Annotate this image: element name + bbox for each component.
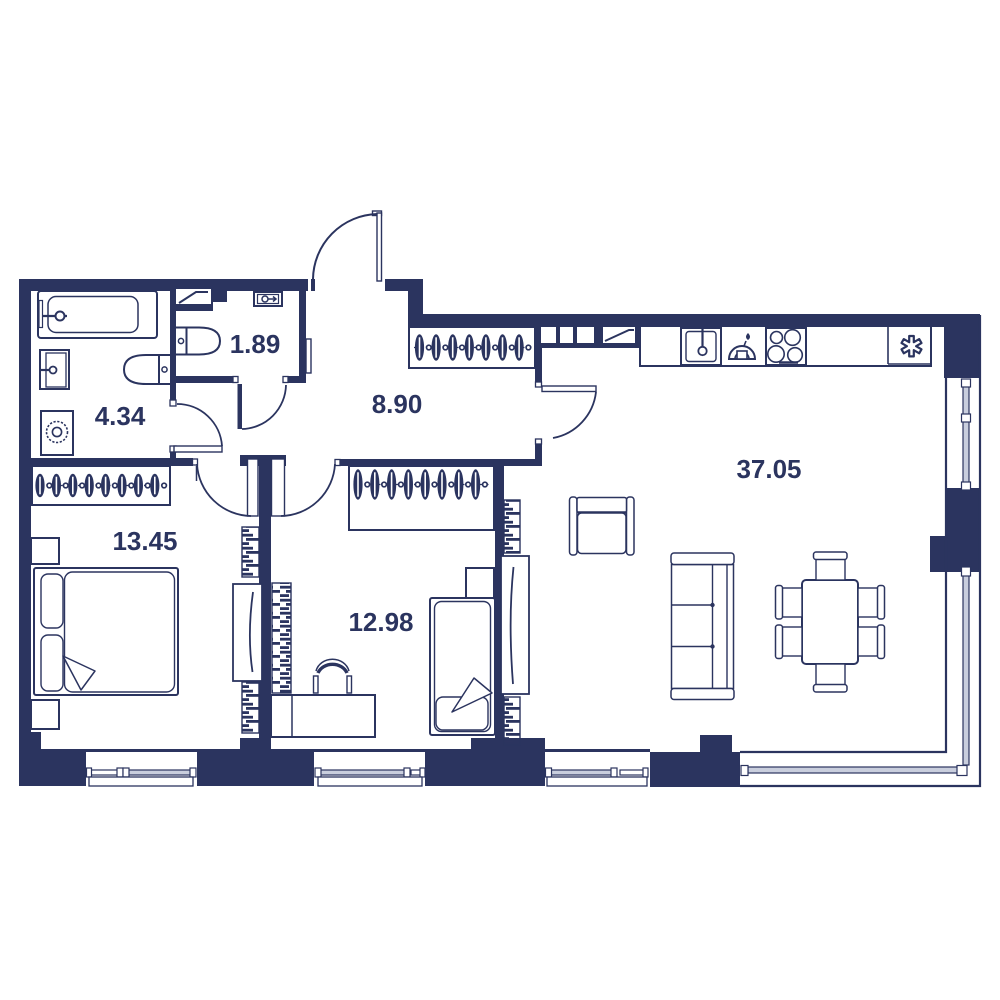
- svg-text:13.45: 13.45: [112, 526, 177, 556]
- svg-text:8.90: 8.90: [372, 389, 423, 419]
- svg-text:37.05: 37.05: [736, 454, 801, 484]
- svg-text:12.98: 12.98: [348, 607, 413, 637]
- svg-text:4.34: 4.34: [95, 401, 146, 431]
- svg-text:1.89: 1.89: [230, 329, 281, 359]
